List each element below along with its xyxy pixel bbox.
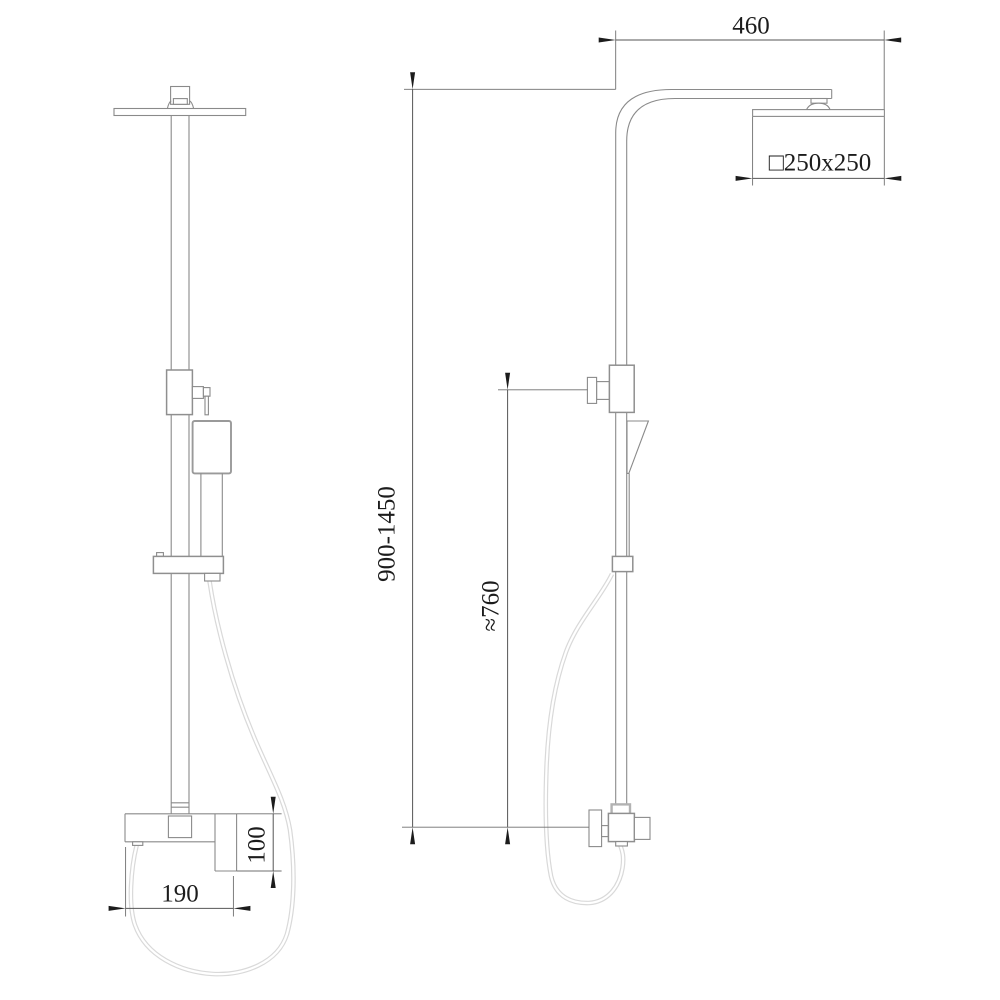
- dimension-label-mixer-height: 100: [245, 826, 270, 864]
- wall-bracket-side: [612, 556, 632, 571]
- hand-shower-side: [627, 421, 648, 556]
- head-swivel-side: [811, 99, 827, 104]
- slider-block-front: [167, 370, 210, 415]
- rain-head-plate-side: [753, 110, 885, 117]
- riser-pipe-front: [171, 116, 189, 814]
- diverter-lever-front: [205, 396, 208, 415]
- mixer-outlet-front: [133, 842, 143, 846]
- hose-connector-front: [205, 573, 220, 581]
- shower-hose-side: [546, 574, 623, 903]
- dimension-label-head-plate: □250x250: [769, 151, 872, 176]
- dimension-label-column-height: 900-1450: [375, 486, 400, 582]
- shower-hose-front: [131, 581, 294, 974]
- slider-block-side: [587, 365, 634, 412]
- mixer-inlet-front: [168, 816, 191, 838]
- mixer-body-side: [589, 804, 650, 846]
- technical-drawing-page: 460 □250x250 900-1450 ≈760 100 190: [0, 0, 1000, 1000]
- overhead-shower-front: [114, 87, 246, 116]
- mixer-knob-side: [634, 817, 650, 839]
- mixer-body-front: [125, 814, 237, 871]
- dimension-column-height: [404, 89, 616, 827]
- hand-shower-front: [193, 421, 231, 556]
- mixer-outlet-side: [616, 842, 628, 846]
- dimension-arm-width: [616, 31, 885, 110]
- dimension-handshower-height: [498, 390, 587, 827]
- riser-pipe-side: [616, 90, 832, 805]
- dimension-label-arm-width: 460: [732, 14, 770, 39]
- side-view: [546, 90, 885, 904]
- slider-knob-side: [587, 377, 596, 403]
- wall-bracket-front: [153, 553, 223, 581]
- mixer-handle-side: [589, 810, 602, 847]
- dimension-label-mixer-width: 190: [161, 882, 199, 907]
- overhead-shower-side: [753, 99, 885, 117]
- rain-head-plate-front: [114, 109, 246, 116]
- dimension-label-handshower-height: ≈760: [479, 580, 504, 631]
